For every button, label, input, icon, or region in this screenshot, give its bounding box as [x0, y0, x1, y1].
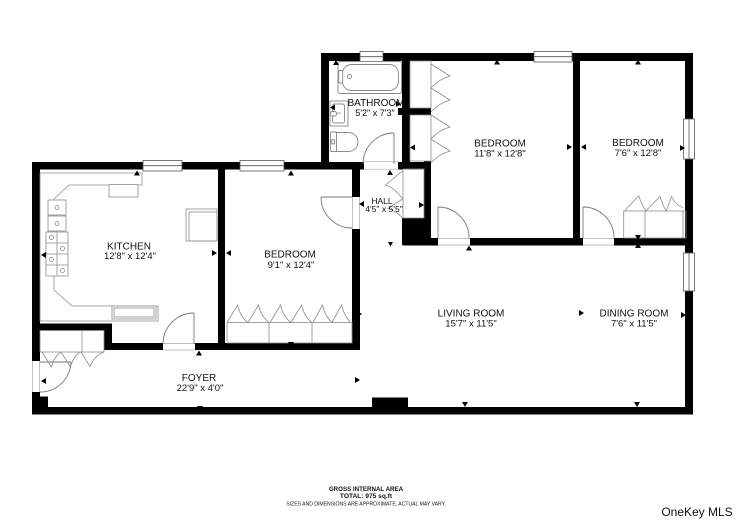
svg-text:OneKey MLS: OneKey MLS — [661, 505, 732, 519]
svg-text:7'6" x 11'5": 7'6" x 11'5" — [611, 319, 657, 330]
svg-text:15'7" x 11'5": 15'7" x 11'5" — [445, 319, 496, 330]
svg-text:4'5" x 5'5": 4'5" x 5'5" — [365, 204, 403, 214]
svg-text:5'2" x 7'3": 5'2" x 7'3" — [355, 108, 394, 118]
svg-text:22'9" x 4'0": 22'9" x 4'0" — [177, 383, 224, 394]
svg-text:BEDROOM: BEDROOM — [264, 250, 316, 261]
svg-text:TOTAL: 975 sq.ft: TOTAL: 975 sq.ft — [340, 493, 393, 500]
svg-text:9'1" x 12'4": 9'1" x 12'4" — [268, 260, 315, 271]
svg-text:12'8" x 12'4": 12'8" x 12'4" — [104, 251, 156, 262]
svg-text:11'8" x 12'8": 11'8" x 12'8" — [474, 148, 525, 159]
svg-text:7'6" x 12'8": 7'6" x 12'8" — [615, 148, 662, 159]
svg-text:SIZES AND DIMENSIONS ARE APPRO: SIZES AND DIMENSIONS ARE APPROXIMATE, AC… — [286, 502, 445, 508]
svg-text:GROSS INTERNAL AREA: GROSS INTERNAL AREA — [329, 486, 404, 493]
